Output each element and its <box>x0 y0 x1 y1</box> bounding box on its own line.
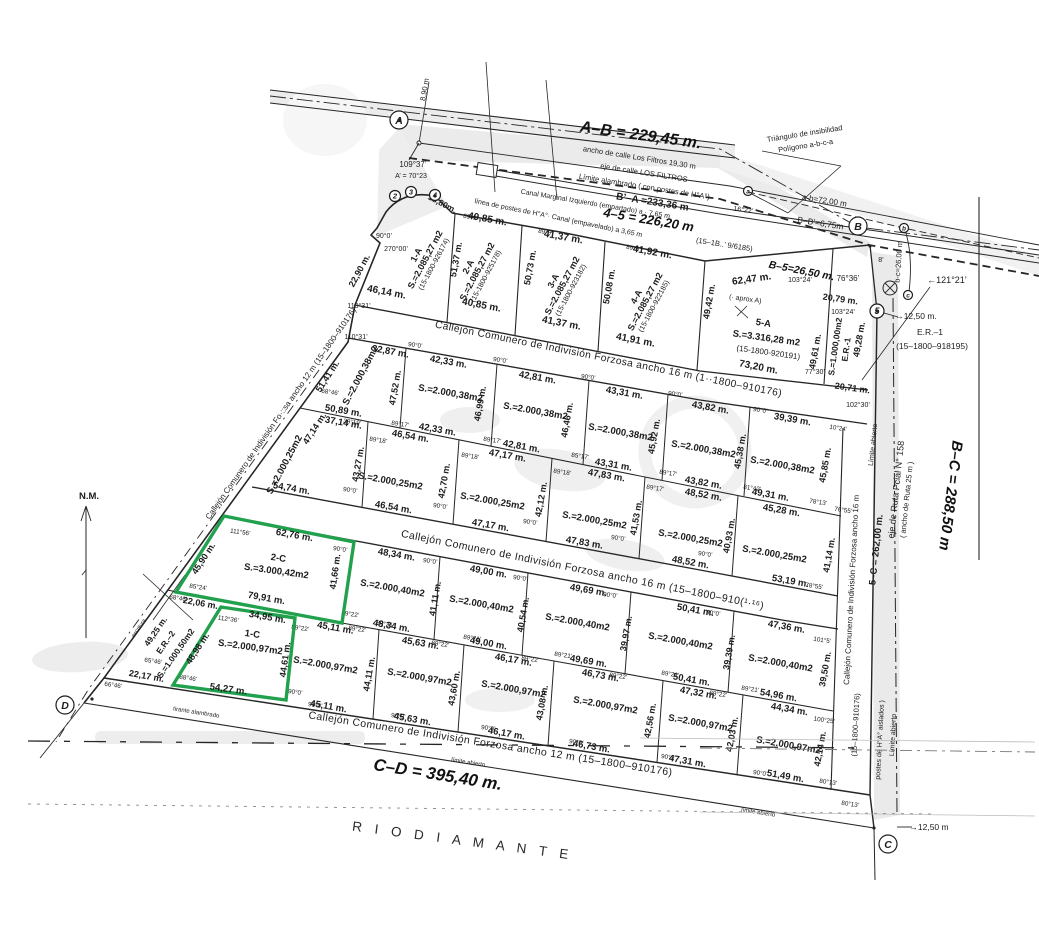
svg-text:A’ = 70°23: A’ = 70°23 <box>395 172 427 180</box>
svg-text:b: b <box>902 225 906 232</box>
svg-text:N.M.: N.M. <box>79 491 99 502</box>
svg-text:D: D <box>61 700 69 712</box>
svg-text:109°37’: 109°37’ <box>399 160 426 169</box>
svg-text:77°30’: 77°30’ <box>805 368 825 376</box>
svg-text:76°36’: 76°36’ <box>837 274 860 283</box>
svg-text:E.R.–1: E.R.–1 <box>917 327 943 337</box>
svg-text:102°30’: 102°30’ <box>846 401 870 409</box>
svg-text:2: 2 <box>392 192 398 201</box>
svg-text:2-C: 2-C <box>270 552 287 565</box>
svg-text:8’: 8’ <box>878 257 884 264</box>
svg-text:110°31’: 110°31’ <box>344 333 368 341</box>
svg-text:103°24’: 103°24’ <box>831 308 855 316</box>
svg-text:→12,50 m.: →12,50 m. <box>895 311 937 321</box>
svg-text:5-A: 5-A <box>755 317 772 330</box>
svg-text:1-C: 1-C <box>244 628 261 641</box>
svg-text:→12,50 m: →12,50 m <box>909 822 948 832</box>
svg-text:B: B <box>854 221 862 233</box>
svg-text:270°00’: 270°00’ <box>384 245 408 253</box>
svg-text:←121°21’: ←121°21’ <box>927 275 967 285</box>
svg-text:C: C <box>884 839 892 851</box>
svg-text:c: c <box>906 292 910 299</box>
svg-text:(15–1800–918195): (15–1800–918195) <box>896 341 968 351</box>
svg-text:90°0’: 90°0’ <box>376 232 392 240</box>
